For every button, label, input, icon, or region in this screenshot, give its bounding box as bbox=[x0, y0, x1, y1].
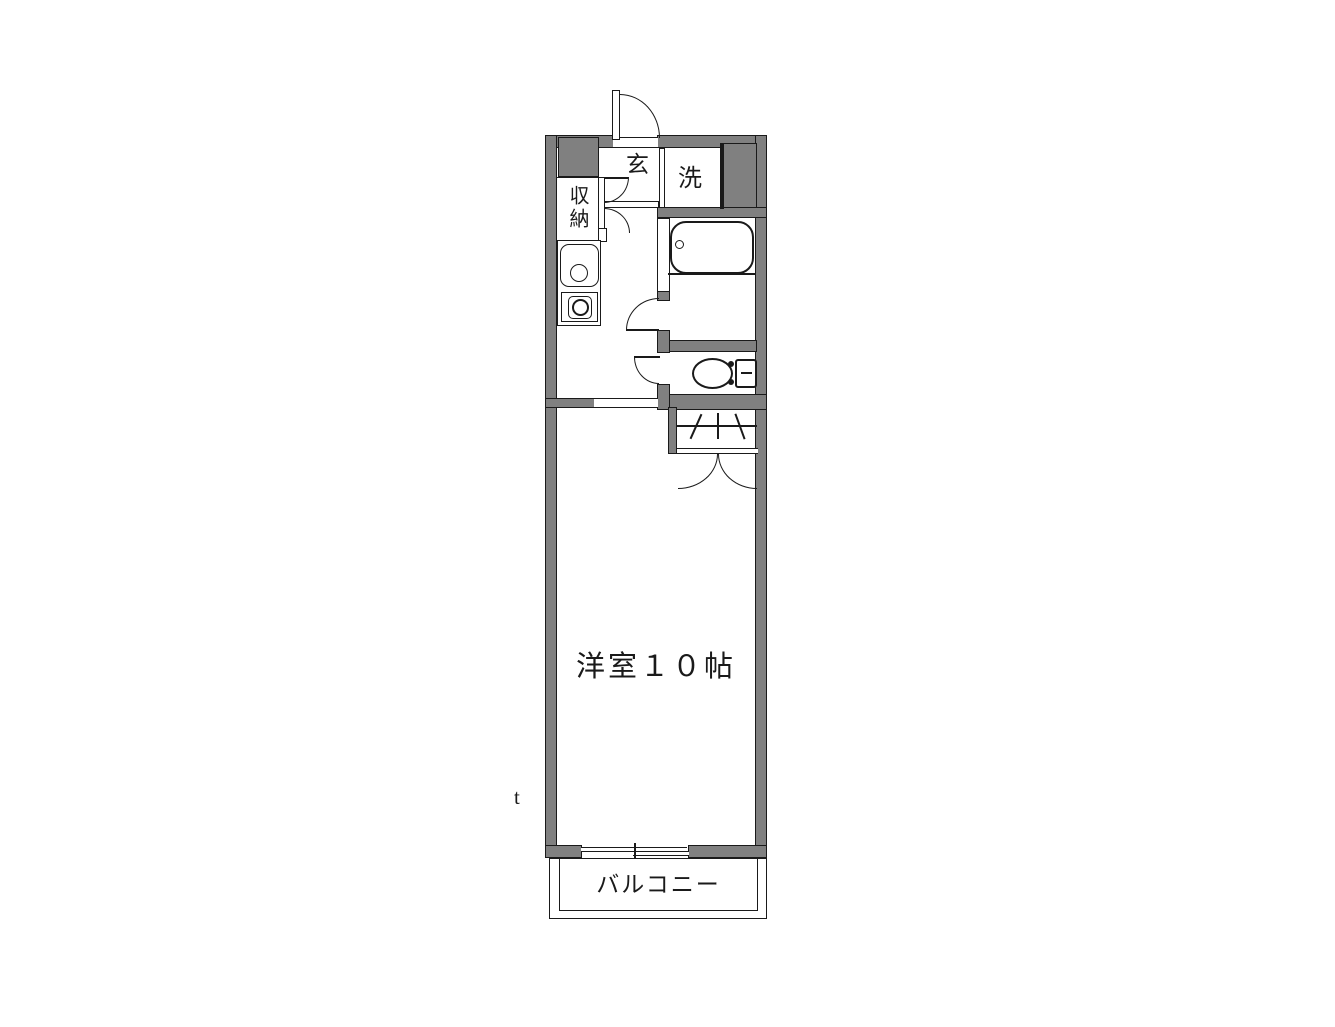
hall-door-arc-upper bbox=[604, 177, 629, 203]
toilet-door-swing-arc bbox=[634, 357, 659, 384]
hall-door-arc-lower bbox=[604, 208, 630, 233]
wall-closet-left bbox=[668, 407, 677, 454]
pillar-top-left bbox=[558, 137, 599, 177]
laundry-label: 洗 bbox=[678, 166, 702, 192]
wall-bath-top bbox=[657, 207, 767, 218]
entrance-door-swing-arc bbox=[620, 94, 660, 138]
wall-bath-toilet bbox=[657, 340, 757, 352]
tub-drain-icon bbox=[675, 240, 684, 249]
closet-hanger-icon-center bbox=[717, 413, 719, 439]
toilet-hinge-dot-top bbox=[728, 361, 734, 367]
wall-entrance-laundry bbox=[659, 148, 665, 208]
main-room-label: 洋室１０帖 bbox=[557, 652, 755, 684]
wall-laundry-pillar bbox=[720, 143, 724, 209]
closet-door-arc-right bbox=[718, 454, 757, 489]
floor-plan: 収納 バルコニー 玄 洗 洋室１０帖 t bbox=[0, 0, 1335, 1027]
wall-bath-jamb-mid bbox=[657, 330, 670, 353]
stove-burner-icon bbox=[572, 299, 589, 316]
wall-left bbox=[545, 135, 557, 858]
toilet-tank-dash bbox=[741, 372, 752, 374]
entrance-door-leaf bbox=[612, 90, 620, 140]
wall-right bbox=[755, 135, 767, 858]
stray-mark: t bbox=[514, 786, 520, 809]
wall-bottom-right bbox=[688, 845, 767, 858]
wall-bottom-left bbox=[545, 845, 582, 858]
sink-drain-icon bbox=[570, 264, 588, 282]
wall-hall-room-left bbox=[545, 398, 595, 408]
bath-floor-line bbox=[668, 273, 755, 275]
bath-door-swing-arc bbox=[626, 298, 659, 330]
pillar-top-right bbox=[723, 143, 757, 209]
entrance-label: 玄 bbox=[626, 152, 649, 177]
wall-hall-bath-thin bbox=[657, 218, 670, 292]
sliding-window-icon-inner bbox=[633, 851, 689, 856]
closet-door-arc-left bbox=[678, 454, 718, 489]
storage-label: 収納 bbox=[566, 185, 588, 231]
toilet-bowl-icon bbox=[692, 358, 733, 389]
toilet-hinge-dot-bottom bbox=[728, 379, 734, 385]
balcony-label: バルコニー bbox=[559, 872, 758, 897]
hall-room-opening bbox=[594, 398, 658, 408]
entrance-step-edge bbox=[604, 201, 659, 208]
